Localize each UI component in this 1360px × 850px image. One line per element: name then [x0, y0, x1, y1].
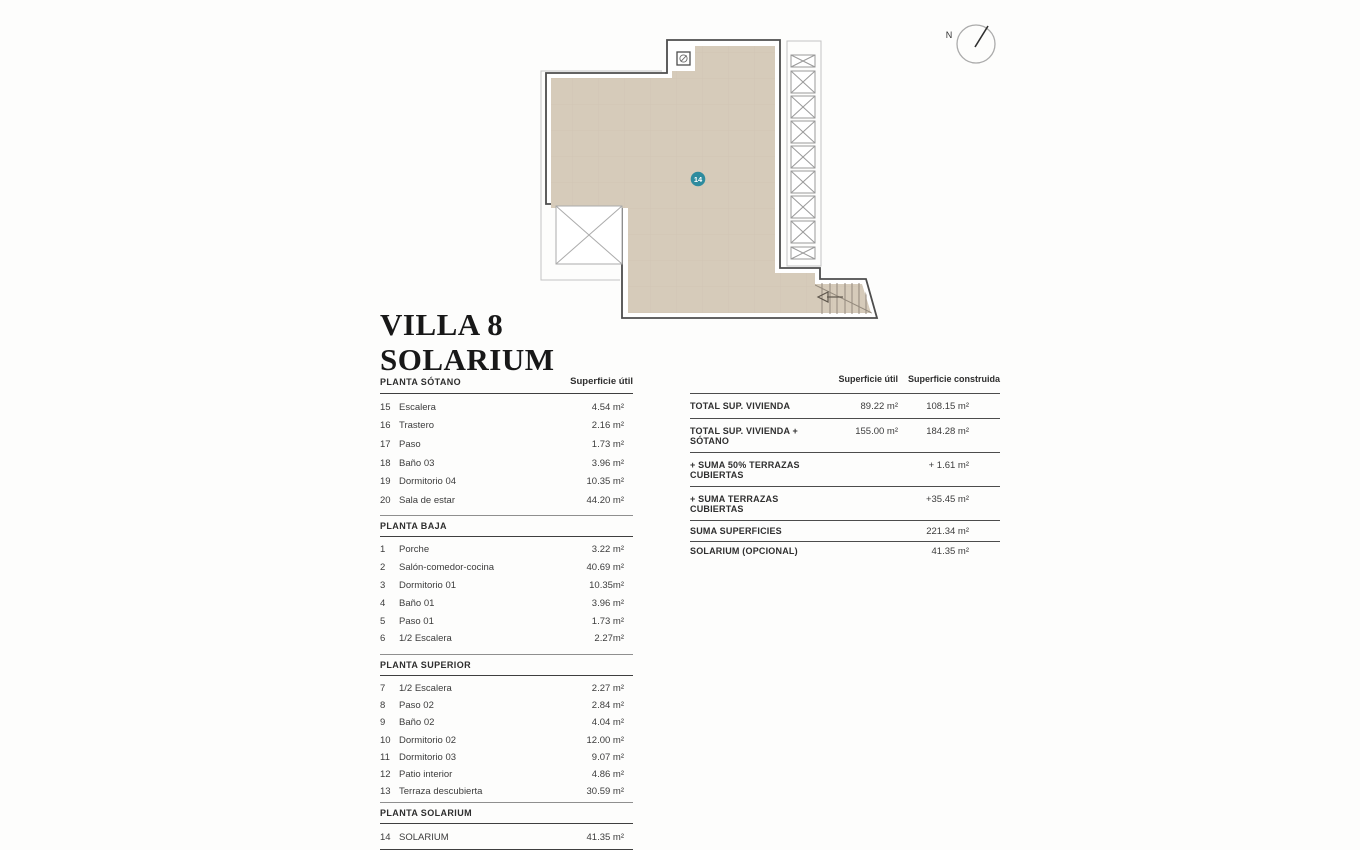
summary-row: SUMA SUPERFICIES 221.34 m²: [690, 521, 1000, 542]
table-row: 3Dormitorio 0110.35m²: [380, 576, 633, 594]
summary-row: + SUMA 50% TERRAZAS CUBIERTAS + 1.61 m²: [690, 453, 1000, 487]
brochure-page: 14 N VILLA 8 SOLARIUM PLANTA SÓTANO Supe…: [0, 0, 1360, 850]
table-row: 11Dormitorio 039.07 m²: [380, 749, 633, 766]
pergola-beams: [791, 55, 815, 259]
page-title-line2: SOLARIUM: [380, 342, 555, 377]
column-header-superficie-util: Superficie útil: [570, 376, 633, 387]
section-title: PLANTA SÓTANO: [380, 377, 461, 387]
void-opening: [556, 206, 622, 264]
table-row: 20Sala de estar44.20 m²: [380, 491, 633, 510]
table-row: 4Baño 013.96 m²: [380, 594, 633, 612]
summary-row: + SUMA TERRAZAS CUBIERTAS +35.45 m²: [690, 487, 1000, 521]
section-header-sotano: PLANTA SÓTANO Superficie útil: [380, 374, 633, 394]
section-title: PLANTA SOLARIUM: [380, 805, 633, 821]
rows-solarium: 14SOLARIUM41.35 m²: [380, 824, 633, 846]
rows-baja: 1Porche3.22 m² 2Salón-comedor-cocina40.6…: [380, 537, 633, 648]
table-row: 17Paso1.73 m²: [380, 435, 633, 454]
floor-tile-grid: [551, 46, 871, 313]
summary-row: TOTAL SUP. VIVIENDA 89.22 m² 108.15 m²: [690, 394, 1000, 419]
section-header-solarium: PLANTA SOLARIUM: [380, 802, 633, 824]
table-row: 19Dormitorio 0410.35 m²: [380, 472, 633, 491]
column-header-superficie-construida: Superficie construida: [898, 374, 1000, 384]
summary-row: TOTAL SUP. VIVIENDA + SÓTANO 155.00 m² 1…: [690, 419, 1000, 453]
page-title: VILLA 8 SOLARIUM: [380, 307, 555, 377]
table-row: 10Dormitorio 0212.00 m²: [380, 731, 633, 748]
section-title: PLANTA BAJA: [380, 518, 633, 534]
table-row: 14SOLARIUM41.35 m²: [380, 828, 633, 846]
summary-table: Superficie útil Superficie construida TO…: [690, 374, 1000, 557]
table-row: 9Baño 024.04 m²: [380, 714, 633, 731]
table-row: 8Paso 022.84 m²: [380, 697, 633, 714]
table-row: 61/2 Escalera2.27m²: [380, 630, 633, 648]
floor-plan-drawing: 14 N: [0, 0, 1360, 850]
area-table: PLANTA SÓTANO Superficie útil 15Escalera…: [380, 374, 633, 850]
compass-north-label: N: [946, 30, 953, 40]
drain-symbol-icon: [677, 52, 690, 65]
rows-superior: 71/2 Escalera2.27 m² 8Paso 022.84 m² 9Ba…: [380, 676, 633, 800]
table-row: 2Salón-comedor-cocina40.69 m²: [380, 558, 633, 576]
summary-header: Superficie útil Superficie construida: [690, 374, 1000, 394]
table-row: 18Baño 033.96 m²: [380, 454, 633, 473]
table-row: 13Terraza descubierta30.59 m²: [380, 783, 633, 800]
room-marker: 14: [691, 172, 706, 187]
column-header-superficie-util: Superficie útil: [690, 374, 898, 384]
rows-sotano: 15Escalera4.54 m² 16Trastero2.16 m² 17Pa…: [380, 394, 633, 510]
section-header-baja: PLANTA BAJA: [380, 515, 633, 537]
section-header-superior: PLANTA SUPERIOR: [380, 654, 633, 676]
table-row: 16Trastero2.16 m²: [380, 417, 633, 436]
section-title: PLANTA SUPERIOR: [380, 657, 633, 673]
table-row: 12Patio interior4.86 m²: [380, 766, 633, 783]
compass-icon: N: [946, 25, 995, 63]
summary-row: SOLARIUM (OPCIONAL) 41.35 m²: [690, 542, 1000, 557]
room-marker-number: 14: [694, 175, 703, 184]
page-title-line1: VILLA 8: [380, 307, 555, 342]
table-row: 15Escalera4.54 m²: [380, 398, 633, 417]
table-row: 1Porche3.22 m²: [380, 541, 633, 559]
table-row: 5Paso 011.73 m²: [380, 612, 633, 630]
table-row: 71/2 Escalera2.27 m²: [380, 680, 633, 697]
